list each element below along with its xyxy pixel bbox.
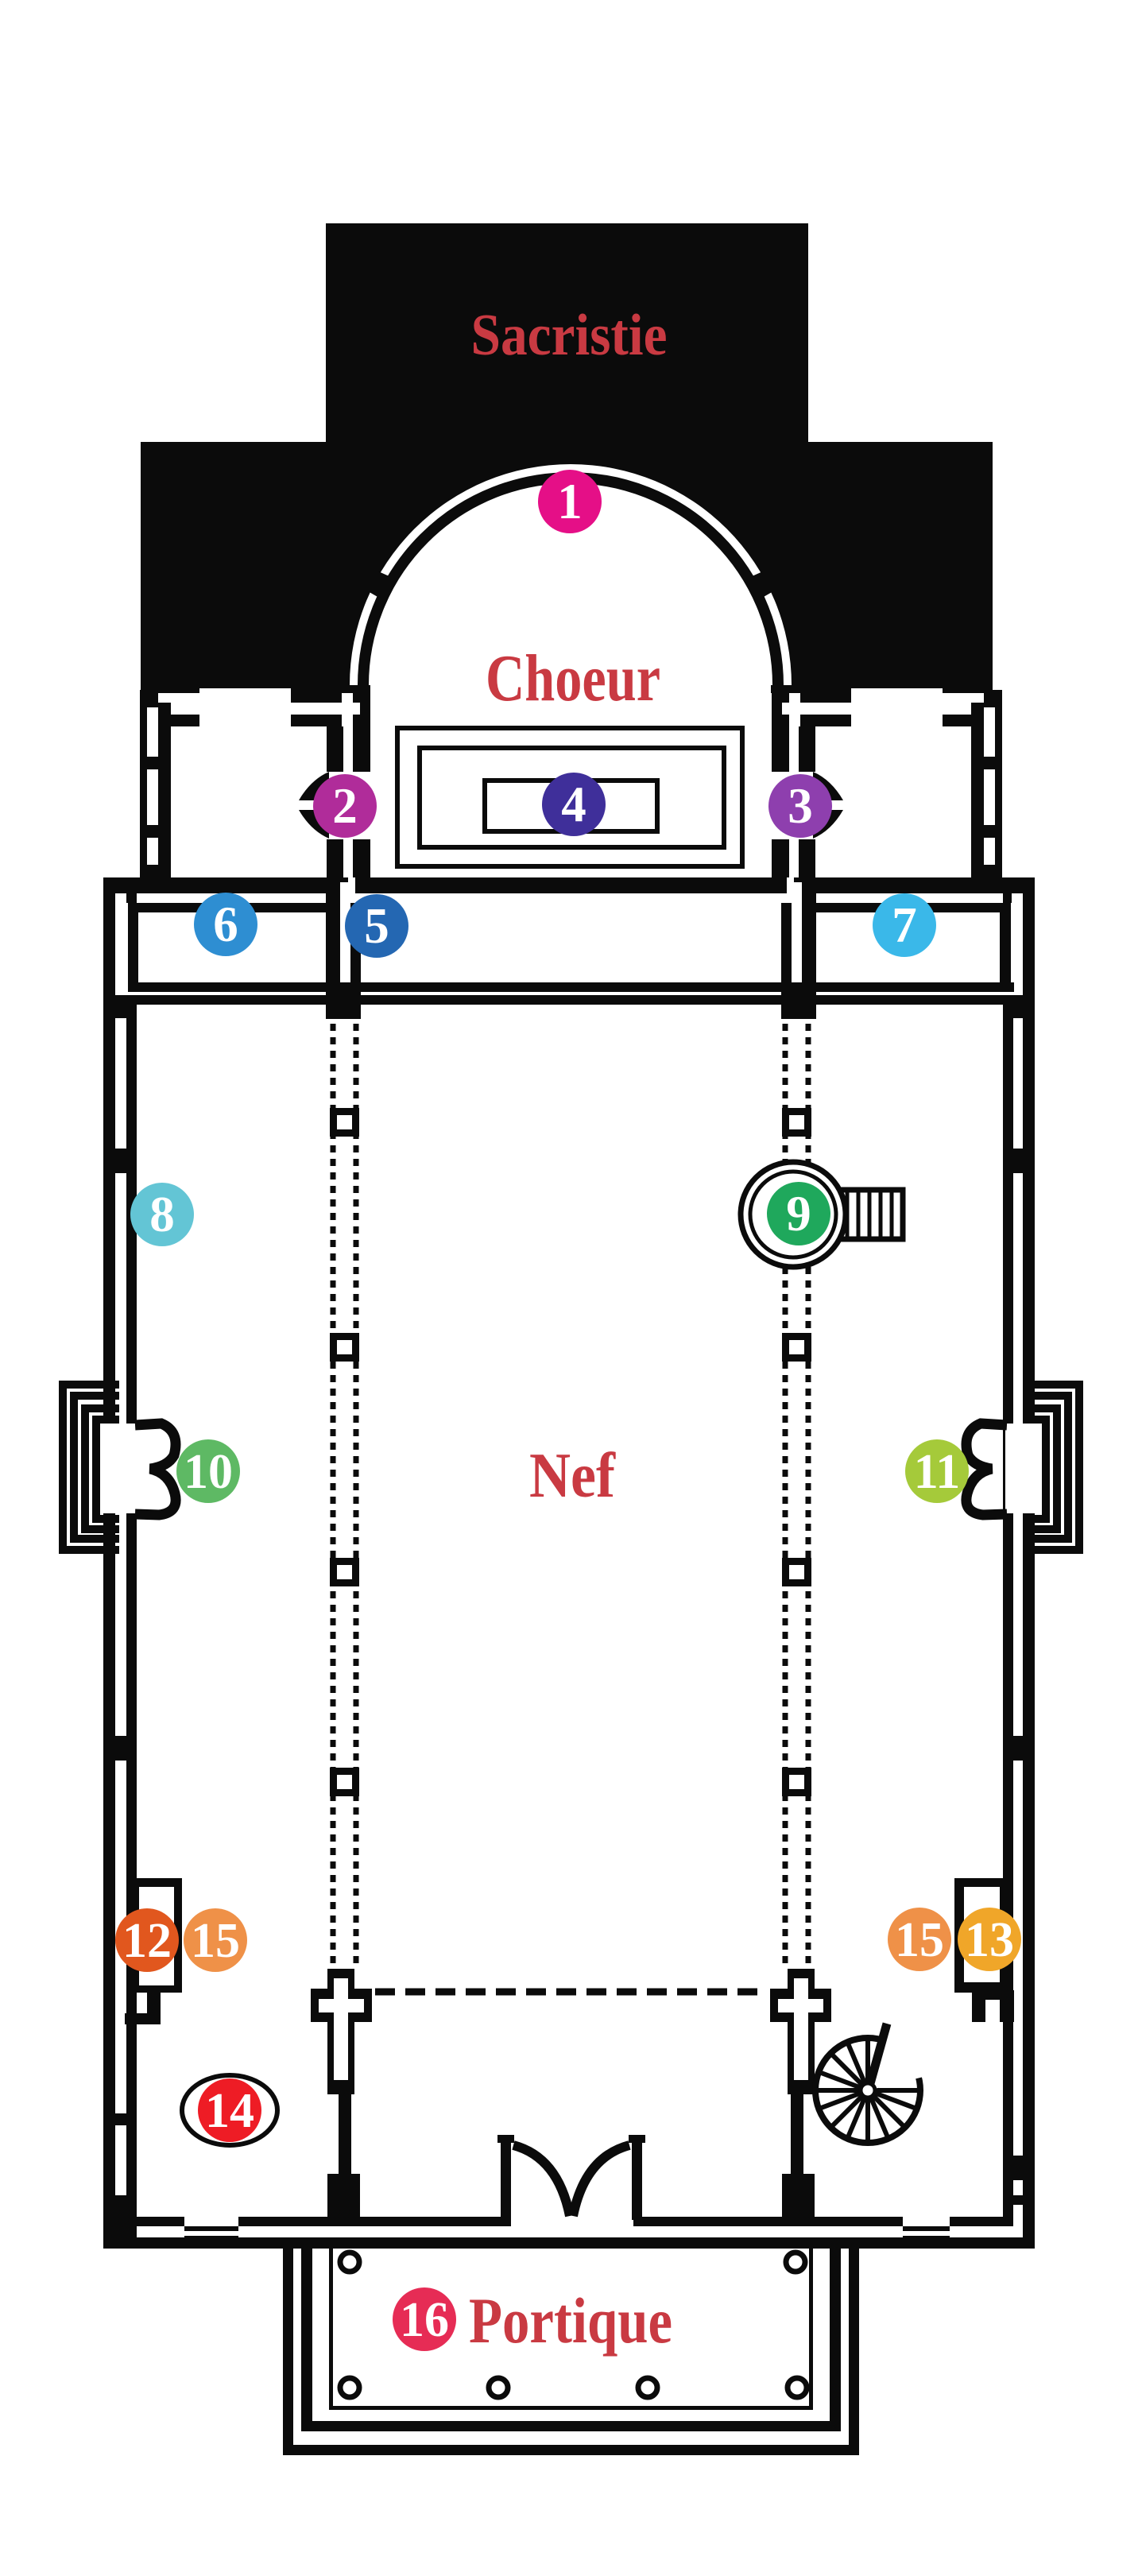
svg-text:15: 15: [191, 1914, 240, 1968]
svg-text:Nef: Nef: [529, 1441, 616, 1511]
svg-text:15: 15: [895, 1913, 944, 1967]
svg-text:11: 11: [914, 1445, 961, 1499]
svg-text:2: 2: [332, 778, 358, 834]
svg-text:Choeur: Choeur: [486, 641, 660, 715]
svg-text:9: 9: [786, 1186, 811, 1242]
svg-text:8: 8: [149, 1187, 175, 1242]
svg-text:14: 14: [205, 2084, 254, 2138]
svg-text:3: 3: [788, 778, 813, 834]
svg-text:6: 6: [213, 897, 238, 952]
svg-text:16: 16: [400, 2293, 449, 2347]
svg-text:12: 12: [122, 1914, 172, 1968]
svg-text:Sacristie: Sacristie: [471, 303, 668, 368]
svg-text:5: 5: [364, 898, 389, 954]
svg-text:7: 7: [892, 897, 917, 953]
svg-text:13: 13: [965, 1913, 1014, 1967]
svg-text:10: 10: [184, 1445, 233, 1499]
svg-text:1: 1: [557, 474, 583, 529]
svg-text:4: 4: [561, 777, 586, 832]
svg-text:Portique: Portique: [469, 2284, 672, 2357]
